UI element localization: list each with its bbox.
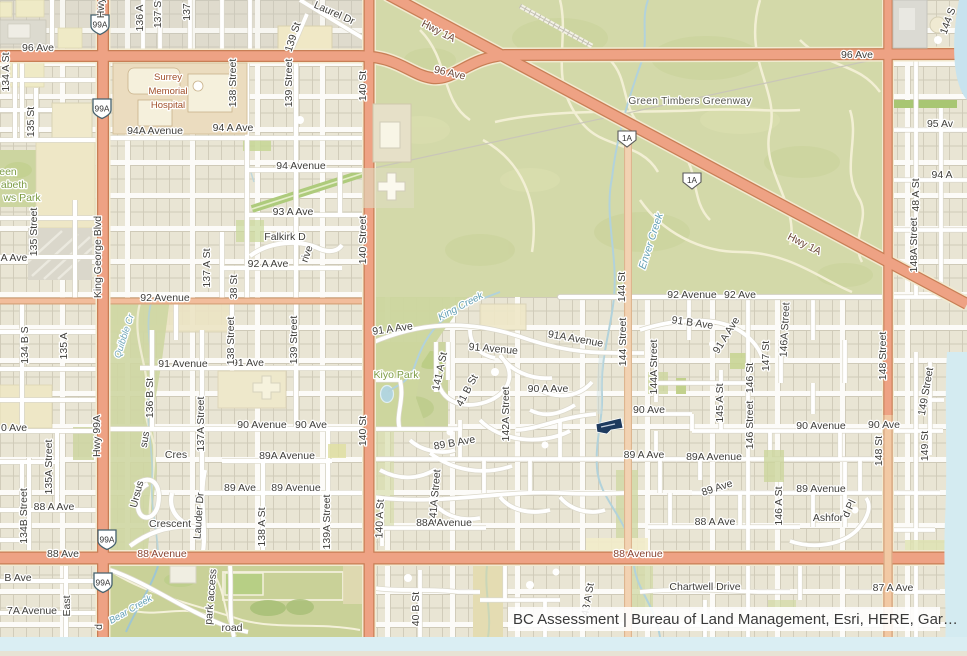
svg-text:99A: 99A (95, 103, 110, 113)
svg-text:149 St: 149 St (919, 431, 931, 461)
svg-text:144A Street: 144A Street (648, 339, 660, 394)
svg-text:92 Ave: 92 Ave (724, 289, 756, 301)
svg-text:King George Blvd: King George Blvd (92, 216, 104, 298)
svg-text:Surrey: Surrey (154, 72, 182, 83)
svg-text:136 A: 136 A (134, 5, 146, 32)
svg-text:95 Av: 95 Av (927, 118, 954, 130)
svg-text:94 Avenue: 94 Avenue (276, 160, 326, 172)
svg-text:134B Street: 134B Street (18, 488, 30, 544)
svg-text:94 A Ave: 94 A Ave (213, 122, 254, 134)
svg-text:88 Avenue: 88 Avenue (613, 548, 663, 560)
svg-text:Green Timbers Greenway: Green Timbers Greenway (628, 96, 752, 107)
svg-text:135 A: 135 A (58, 333, 70, 360)
svg-text:94A Avenue: 94A Avenue (127, 125, 183, 137)
svg-text:road: road (221, 622, 242, 634)
svg-text:140 A St: 140 A St (373, 499, 386, 539)
svg-text:89 A Ave: 89 A Ave (624, 449, 665, 461)
svg-text:137 St: 137 St (152, 0, 164, 28)
svg-text:1A: 1A (622, 134, 633, 143)
svg-text:Chartwell Drive: Chartwell Drive (669, 581, 740, 593)
svg-text:Hwy: Hwy (95, 0, 107, 18)
svg-text:138 Street: 138 Street (227, 59, 239, 108)
svg-text:89 Avenue: 89 Avenue (796, 483, 846, 495)
svg-text:134 B S: 134 B S (19, 326, 31, 363)
svg-text:139A Street: 139A Street (321, 494, 333, 549)
svg-text:140 St: 140 St (357, 416, 369, 446)
svg-text:144 Street: 144 Street (617, 318, 629, 367)
svg-text:Hwy 99A: Hwy 99A (91, 415, 103, 457)
svg-text:88 Avenue: 88 Avenue (137, 548, 187, 560)
svg-text:7A Avenue: 7A Avenue (7, 605, 57, 617)
svg-text:Crescent: Crescent (149, 518, 191, 530)
svg-text:38 St: 38 St (228, 275, 240, 300)
svg-text:89A Avenue: 89A Avenue (686, 451, 742, 463)
svg-text:92 Avenue: 92 Avenue (667, 289, 717, 301)
svg-text:90 A Ave: 90 A Ave (528, 383, 569, 395)
svg-text:89 Avenue: 89 Avenue (271, 482, 321, 494)
svg-text:Cres: Cres (165, 449, 187, 461)
svg-text:88 A Ave: 88 A Ave (34, 501, 75, 513)
svg-text:een: een (0, 166, 17, 178)
svg-text:d: d (93, 624, 105, 630)
svg-text:147 St: 147 St (760, 341, 772, 371)
svg-text:89 Ave: 89 Ave (224, 482, 256, 494)
svg-text:96 Ave: 96 Ave (22, 42, 54, 54)
svg-text:90 Ave: 90 Ave (633, 404, 665, 416)
svg-text:abeth: abeth (1, 179, 27, 191)
svg-text:Hospital: Hospital (151, 100, 185, 111)
svg-text:90 Avenue: 90 Avenue (796, 420, 846, 432)
svg-text:139 Street: 139 Street (283, 59, 295, 108)
svg-text:90 Ave: 90 Ave (868, 419, 900, 431)
svg-text:99A: 99A (100, 534, 115, 544)
svg-text:140 Street: 140 Street (357, 216, 369, 265)
svg-text:146 A St: 146 A St (773, 486, 785, 525)
svg-text:99A: 99A (96, 577, 111, 587)
svg-text:134 A St: 134 A St (0, 52, 12, 91)
svg-text:40 B St: 40 B St (410, 592, 422, 627)
svg-text:136 B St: 136 B St (144, 378, 156, 418)
svg-text:148A Street: 148A Street (908, 217, 920, 272)
svg-text:88A Avenue: 88A Avenue (416, 517, 472, 529)
svg-text:148 St: 148 St (873, 436, 885, 466)
svg-text:99A: 99A (93, 19, 108, 29)
svg-text:135 St: 135 St (25, 107, 37, 137)
svg-text:145 A St: 145 A St (714, 383, 726, 422)
svg-text:92 Avenue: 92 Avenue (140, 292, 190, 304)
svg-text:48 A St: 48 A St (910, 178, 922, 211)
svg-text:135 Street: 135 Street (28, 208, 40, 257)
svg-text:144 St: 144 St (616, 272, 628, 302)
svg-text:0 Ave: 0 Ave (1, 422, 27, 434)
svg-text:137A Street: 137A Street (195, 396, 207, 451)
svg-text:ws Park: ws Park (2, 192, 41, 204)
svg-text:146 St: 146 St (744, 363, 756, 393)
svg-text:139 Street: 139 Street (288, 316, 300, 365)
svg-text:Memorial: Memorial (148, 86, 187, 97)
svg-text:91 Avenue: 91 Avenue (158, 358, 208, 370)
svg-text:94 A: 94 A (931, 169, 952, 181)
svg-text:A Ave: A Ave (1, 252, 28, 264)
svg-text:Falkirk D: Falkirk D (264, 231, 306, 243)
svg-text:96 Ave: 96 Ave (841, 49, 873, 61)
svg-text:92 A Ave: 92 A Ave (248, 258, 289, 270)
svg-text:1A: 1A (687, 176, 698, 185)
svg-text:137: 137 (181, 3, 193, 21)
svg-text:87 A Ave: 87 A Ave (873, 582, 914, 594)
svg-text:BC Assessment | Bureau of Land: BC Assessment | Bureau of Land Managemen… (513, 611, 958, 628)
svg-text:146 Street: 146 Street (744, 401, 756, 450)
svg-text:137 A St: 137 A St (201, 248, 213, 287)
svg-text:90 Avenue: 90 Avenue (237, 419, 287, 431)
svg-text:148 Street: 148 Street (877, 332, 889, 381)
svg-text:88 Ave: 88 Ave (47, 548, 79, 560)
svg-text:140 St: 140 St (357, 71, 369, 101)
svg-text:138 Street: 138 Street (225, 317, 237, 366)
svg-text:135A Street: 135A Street (43, 439, 55, 494)
svg-text:Kiyo Park: Kiyo Park (374, 369, 420, 381)
svg-text:Ashfor: Ashfor (813, 512, 844, 524)
svg-text:90 Ave: 90 Ave (295, 419, 327, 431)
svg-text:88 A Ave: 88 A Ave (695, 516, 736, 528)
svg-text:89A Avenue: 89A Avenue (259, 450, 315, 462)
svg-text:93 A Ave: 93 A Ave (273, 206, 314, 218)
svg-text:East: East (61, 595, 73, 616)
svg-text:142A Street: 142A Street (500, 386, 512, 441)
svg-text:138 A St: 138 A St (256, 507, 268, 546)
svg-text:B Ave: B Ave (4, 572, 31, 584)
